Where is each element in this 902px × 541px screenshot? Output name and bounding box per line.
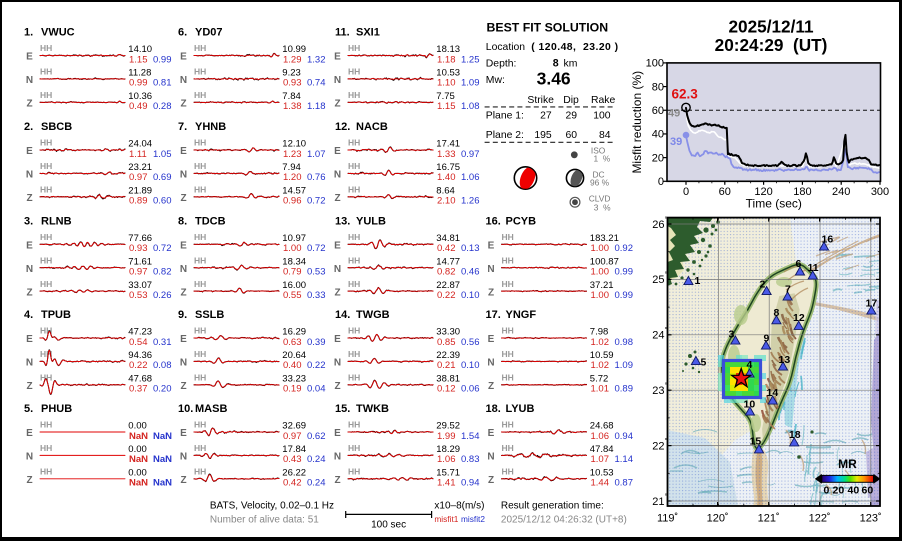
svg-text:HH: HH (502, 326, 514, 336)
svg-text:km: km (564, 58, 578, 69)
svg-text:100: 100 (646, 58, 664, 70)
svg-text:20:24:29 (UT): 20:24:29 (UT) (715, 35, 828, 55)
svg-text:0.43: 0.43 (283, 454, 302, 465)
svg-text:0.10: 0.10 (461, 360, 480, 371)
svg-text:15: 15 (750, 436, 762, 448)
svg-text:0.99: 0.99 (153, 54, 172, 65)
svg-text:TWKB: TWKB (356, 403, 389, 415)
svg-text:11.: 11. (335, 27, 350, 39)
svg-text:Plane 1:: Plane 1: (486, 110, 524, 121)
svg-text:5.: 5. (24, 403, 33, 415)
svg-text:0.04: 0.04 (307, 384, 326, 395)
svg-text:˚: ˚ (665, 271, 668, 280)
svg-text:1.07: 1.07 (591, 454, 610, 465)
svg-text:0.53: 0.53 (129, 290, 148, 301)
svg-text:5: 5 (701, 357, 707, 369)
svg-text:0.39: 0.39 (307, 337, 326, 348)
svg-text:1.26: 1.26 (461, 196, 480, 207)
svg-text:TPUB: TPUB (41, 309, 71, 321)
svg-text:1.09: 1.09 (615, 360, 634, 371)
svg-text:1.09: 1.09 (461, 78, 480, 89)
svg-text:PCYB: PCYB (506, 216, 537, 228)
svg-text:E: E (488, 428, 495, 439)
svg-text:0.69: 0.69 (153, 172, 172, 183)
svg-text:N: N (334, 170, 341, 181)
svg-text:N: N (26, 75, 33, 86)
svg-text:0.22: 0.22 (129, 360, 148, 371)
svg-text:E: E (180, 334, 187, 345)
svg-text:0.46: 0.46 (461, 267, 480, 278)
svg-text:Dip: Dip (563, 95, 579, 106)
svg-text:Misfit reduction (%): Misfit reduction (%) (630, 71, 644, 174)
svg-text:N: N (180, 452, 187, 463)
svg-text:Z: Z (26, 193, 32, 204)
svg-text:HH: HH (194, 420, 206, 430)
svg-text:YHNB: YHNB (195, 121, 226, 133)
svg-text:Z: Z (488, 381, 494, 392)
svg-text:0.22: 0.22 (307, 360, 326, 371)
svg-text:0.97: 0.97 (129, 172, 148, 183)
svg-text:39: 39 (670, 136, 682, 148)
svg-text:0.06: 0.06 (461, 384, 480, 395)
svg-text:0.74: 0.74 (307, 78, 326, 89)
svg-text:N: N (334, 75, 341, 86)
svg-text:6.: 6. (178, 27, 187, 39)
svg-text:N: N (26, 264, 33, 275)
svg-text:49: 49 (668, 107, 680, 119)
svg-text:Z: Z (488, 287, 494, 298)
svg-text:HH: HH (348, 420, 360, 430)
svg-text:17.: 17. (486, 309, 501, 321)
svg-text:14: 14 (767, 387, 779, 399)
svg-text:x10–8(m/s): x10–8(m/s) (434, 500, 484, 511)
svg-text:HH: HH (40, 373, 52, 383)
svg-text:0.24: 0.24 (307, 454, 326, 465)
svg-text:6: 6 (796, 258, 802, 270)
svg-text:3 %: 3 % (594, 202, 611, 212)
svg-text:1.20: 1.20 (283, 172, 302, 183)
svg-text:˚: ˚ (665, 382, 668, 391)
svg-text:60: 60 (652, 105, 664, 117)
svg-text:13: 13 (779, 354, 791, 366)
svg-text:N: N (180, 170, 187, 181)
svg-text:LYUB: LYUB (506, 403, 535, 415)
svg-text:˚: ˚ (665, 216, 668, 225)
svg-text:123˚: 123˚ (860, 513, 882, 525)
svg-text:195: 195 (534, 130, 552, 141)
svg-text:N: N (26, 170, 33, 181)
svg-text:2025/12/12 04:26:32 (UT+8): 2025/12/12 04:26:32 (UT+8) (501, 514, 627, 525)
svg-text:0.94: 0.94 (461, 478, 480, 489)
svg-text:1.11: 1.11 (129, 149, 147, 160)
svg-text:240: 240 (832, 186, 850, 198)
svg-text:0.82: 0.82 (437, 267, 456, 278)
svg-text:2.10: 2.10 (437, 196, 456, 207)
svg-text:HH: HH (502, 373, 514, 383)
svg-text:1.99: 1.99 (437, 431, 456, 442)
svg-text:4.: 4. (24, 309, 33, 321)
svg-text:0.42: 0.42 (283, 478, 302, 489)
svg-text:16: 16 (822, 234, 834, 246)
svg-text:HH: HH (194, 279, 206, 289)
svg-text:0.56: 0.56 (461, 337, 480, 348)
svg-text:1.18: 1.18 (437, 54, 456, 65)
svg-text:60: 60 (862, 484, 874, 496)
svg-text:1.08: 1.08 (461, 101, 480, 112)
svg-text:0.72: 0.72 (307, 196, 326, 207)
svg-text:1.00: 1.00 (591, 290, 610, 301)
svg-text:1.44: 1.44 (591, 478, 610, 489)
svg-text:1.29: 1.29 (283, 54, 302, 65)
svg-text:Mw:: Mw: (486, 75, 505, 86)
svg-text:HH: HH (40, 90, 52, 100)
svg-text:0.83: 0.83 (461, 454, 480, 465)
svg-text:1.32: 1.32 (307, 54, 326, 65)
svg-text:HH: HH (348, 185, 360, 195)
svg-text:0.53: 0.53 (307, 267, 326, 278)
svg-text:HH: HH (348, 43, 360, 53)
svg-text:0.79: 0.79 (283, 267, 302, 278)
svg-text:HH: HH (40, 443, 52, 453)
svg-text:HH: HH (194, 255, 206, 265)
svg-text:1.06: 1.06 (591, 431, 610, 442)
svg-text:12: 12 (793, 312, 805, 324)
svg-text:HH: HH (194, 161, 206, 171)
svg-text:1: 1 (695, 275, 701, 287)
svg-text:HH: HH (194, 67, 206, 77)
svg-text:HH: HH (348, 326, 360, 336)
svg-text:1.14: 1.14 (615, 454, 634, 465)
svg-text:0.99: 0.99 (615, 267, 634, 278)
svg-text:0.60: 0.60 (153, 196, 172, 207)
svg-text:0.97: 0.97 (283, 431, 302, 442)
svg-text:Location: Location (486, 42, 526, 53)
svg-text:10: 10 (744, 399, 756, 411)
svg-text:PHUB: PHUB (41, 403, 72, 415)
svg-text:E: E (26, 146, 33, 157)
svg-text:VWUC: VWUC (41, 27, 75, 39)
svg-text:˚: ˚ (665, 493, 668, 502)
svg-text:119˚: 119˚ (657, 513, 678, 525)
svg-text:3.: 3. (24, 216, 33, 228)
svg-text:HH: HH (502, 349, 514, 359)
svg-text:80: 80 (652, 81, 664, 93)
svg-text:˚: ˚ (665, 437, 668, 446)
svg-text:1.00: 1.00 (283, 243, 302, 254)
svg-text:8.: 8. (178, 216, 187, 228)
svg-text:Strike: Strike (527, 95, 554, 106)
svg-text:0.97: 0.97 (461, 149, 480, 160)
svg-text:HH: HH (40, 43, 52, 53)
svg-text:HH: HH (348, 161, 360, 171)
svg-text:Z: Z (180, 193, 186, 204)
svg-text:NACB: NACB (356, 121, 388, 133)
svg-text:0: 0 (824, 484, 830, 496)
svg-text:25: 25 (652, 274, 664, 286)
svg-text:0.55: 0.55 (283, 290, 302, 301)
svg-text:HH: HH (502, 467, 514, 477)
svg-text:15.: 15. (335, 403, 350, 415)
svg-text:0.26: 0.26 (153, 290, 172, 301)
svg-text:0.89: 0.89 (615, 384, 634, 395)
svg-text:0.93: 0.93 (129, 243, 148, 254)
svg-text:27: 27 (540, 110, 552, 121)
svg-text:N: N (334, 264, 341, 275)
svg-text:2.: 2. (24, 121, 33, 133)
svg-text:HH: HH (348, 443, 360, 453)
svg-text:Plane 2:: Plane 2: (486, 130, 524, 141)
svg-text:HH: HH (194, 443, 206, 453)
svg-text:100 sec: 100 sec (371, 519, 406, 530)
svg-text:HH: HH (348, 255, 360, 265)
svg-text:E: E (334, 52, 341, 63)
svg-text:40: 40 (848, 484, 860, 496)
svg-text:E: E (180, 52, 187, 63)
svg-text:RLNB: RLNB (41, 216, 72, 228)
svg-text:HH: HH (194, 90, 206, 100)
svg-text:HH: HH (502, 279, 514, 289)
svg-text:E: E (334, 428, 341, 439)
svg-text:120˚: 120˚ (707, 513, 729, 525)
svg-text:Number of alive data: 51: Number of alive data: 51 (210, 514, 319, 525)
svg-text:9.: 9. (178, 309, 187, 321)
svg-text:E: E (26, 428, 33, 439)
svg-text:HH: HH (348, 138, 360, 148)
svg-text:NaN: NaN (129, 454, 148, 465)
svg-text:N: N (334, 452, 341, 463)
svg-text:HH: HH (194, 185, 206, 195)
svg-text:SXI1: SXI1 (356, 27, 380, 39)
svg-text:1.01: 1.01 (591, 384, 610, 395)
svg-text:11: 11 (808, 262, 819, 274)
svg-text:300: 300 (871, 186, 889, 198)
svg-text:40: 40 (652, 129, 664, 141)
svg-text:0.96: 0.96 (283, 196, 302, 207)
svg-text:0.94: 0.94 (615, 431, 634, 442)
svg-text:0.28: 0.28 (153, 101, 172, 112)
svg-text:HH: HH (194, 326, 206, 336)
svg-text:1.40: 1.40 (437, 172, 456, 183)
svg-text:22: 22 (652, 440, 664, 452)
svg-text:0.20: 0.20 (153, 384, 172, 395)
svg-text:HH: HH (40, 255, 52, 265)
svg-text:HH: HH (194, 232, 206, 242)
svg-text:2: 2 (760, 279, 766, 291)
svg-text:HH: HH (40, 232, 52, 242)
svg-text:0.62: 0.62 (307, 431, 326, 442)
svg-text:HH: HH (194, 43, 206, 53)
svg-text:0.85: 0.85 (437, 337, 456, 348)
svg-text:N: N (334, 358, 341, 369)
svg-text:HH: HH (348, 232, 360, 242)
svg-text:1.05: 1.05 (153, 149, 172, 160)
svg-text:Z: Z (180, 99, 186, 110)
svg-text:1.06: 1.06 (437, 454, 456, 465)
svg-text:24: 24 (652, 330, 664, 342)
svg-text:0.92: 0.92 (615, 243, 634, 254)
svg-text:0.93: 0.93 (283, 78, 302, 89)
svg-text:misfit2: misfit2 (461, 514, 485, 524)
svg-text:0.08: 0.08 (153, 360, 172, 371)
svg-text:E: E (488, 334, 495, 345)
svg-text:TWGB: TWGB (356, 309, 390, 321)
svg-text:N: N (180, 358, 187, 369)
svg-text:N: N (26, 452, 33, 463)
svg-text:Result generation time:: Result generation time: (501, 500, 604, 511)
svg-text:E: E (26, 334, 33, 345)
svg-text:N: N (487, 264, 494, 275)
svg-text:84: 84 (599, 130, 611, 141)
svg-text:Z: Z (488, 475, 494, 486)
svg-text:HH: HH (348, 67, 360, 77)
svg-text:YULB: YULB (356, 216, 386, 228)
svg-text:1.15: 1.15 (129, 54, 148, 65)
svg-text:HH: HH (348, 349, 360, 359)
svg-text:1.54: 1.54 (461, 431, 480, 442)
svg-text:N: N (180, 264, 187, 275)
svg-text:0.99: 0.99 (615, 290, 634, 301)
svg-text:0.82: 0.82 (153, 267, 172, 278)
svg-text:2025/12/11: 2025/12/11 (728, 16, 814, 36)
svg-text:0.72: 0.72 (307, 243, 326, 254)
svg-text:12.: 12. (335, 121, 350, 133)
svg-text:N: N (487, 452, 494, 463)
svg-text:29: 29 (566, 110, 578, 121)
svg-text:1.25: 1.25 (461, 54, 480, 65)
svg-text:0.54: 0.54 (129, 337, 148, 348)
svg-text:1.00: 1.00 (591, 243, 610, 254)
svg-text:60: 60 (566, 130, 578, 141)
svg-text:10.: 10. (178, 403, 193, 415)
svg-text:TDCB: TDCB (195, 216, 226, 228)
svg-text:0.49: 0.49 (129, 101, 148, 112)
svg-text:HH: HH (40, 467, 52, 477)
svg-text:Z: Z (334, 475, 340, 486)
svg-text:20: 20 (833, 484, 845, 496)
svg-text:E: E (180, 146, 187, 157)
svg-text:BATS, Velocity, 0.02–0.1 Hz: BATS, Velocity, 0.02–0.1 Hz (210, 500, 334, 511)
svg-text:0.98: 0.98 (615, 337, 634, 348)
svg-text:0.24: 0.24 (307, 478, 326, 489)
svg-text:Z: Z (26, 381, 32, 392)
svg-text:HH: HH (502, 443, 514, 453)
svg-text:26: 26 (652, 219, 664, 231)
svg-text:( 120.48, 23.20 ): ( 120.48, 23.20 ) (531, 42, 618, 53)
svg-text:0.42: 0.42 (437, 243, 456, 254)
svg-text:1.06: 1.06 (461, 172, 480, 183)
svg-text:HH: HH (40, 138, 52, 148)
svg-text:HH: HH (40, 67, 52, 77)
svg-text:1.18: 1.18 (307, 101, 326, 112)
svg-text:7.: 7. (178, 121, 187, 133)
svg-text:YNGF: YNGF (506, 309, 537, 321)
svg-text:E: E (334, 146, 341, 157)
svg-text:1.10: 1.10 (437, 78, 456, 89)
svg-text:Z: Z (180, 475, 186, 486)
svg-text:E: E (180, 428, 187, 439)
svg-text:Depth:: Depth: (486, 59, 517, 70)
svg-text:Z: Z (26, 287, 32, 298)
svg-text:0.63: 0.63 (283, 337, 302, 348)
svg-text:18.: 18. (486, 403, 501, 415)
svg-text:1.41: 1.41 (437, 478, 456, 489)
svg-text:4: 4 (747, 359, 753, 371)
svg-text:Z: Z (26, 475, 32, 486)
svg-text:1 %: 1 % (594, 154, 611, 164)
svg-text:0.12: 0.12 (437, 384, 456, 395)
svg-text:NaN: NaN (153, 478, 172, 489)
svg-text:HH: HH (194, 349, 206, 359)
svg-text:0.76: 0.76 (307, 172, 326, 183)
svg-text:0.99: 0.99 (129, 78, 148, 89)
svg-text:0.33: 0.33 (307, 290, 326, 301)
svg-text:Z: Z (180, 287, 186, 298)
svg-text:Z: Z (334, 381, 340, 392)
svg-text:HH: HH (194, 138, 206, 148)
svg-text:0.87: 0.87 (615, 478, 634, 489)
svg-text:8: 8 (774, 307, 780, 319)
svg-text:122˚: 122˚ (809, 513, 831, 525)
svg-text:0: 0 (658, 176, 664, 188)
svg-text:1.15: 1.15 (437, 101, 456, 112)
svg-text:21: 21 (652, 496, 664, 508)
svg-text:HH: HH (502, 232, 514, 242)
svg-text:E: E (26, 52, 33, 63)
svg-text:misfit1: misfit1 (434, 514, 458, 524)
svg-text:13.: 13. (335, 216, 350, 228)
svg-text:Z: Z (334, 193, 340, 204)
svg-text:HH: HH (194, 373, 206, 383)
svg-text:62.3: 62.3 (672, 86, 699, 101)
svg-text:NaN: NaN (153, 454, 172, 465)
svg-text:60: 60 (719, 186, 731, 198)
svg-text:SSLB: SSLB (195, 309, 224, 321)
svg-text:HH: HH (40, 161, 52, 171)
svg-text:N: N (180, 75, 187, 86)
svg-text:Z: Z (334, 287, 340, 298)
svg-text:0.40: 0.40 (283, 360, 302, 371)
svg-text:1.33: 1.33 (437, 149, 456, 160)
svg-text:1.00: 1.00 (591, 267, 610, 278)
svg-text:18: 18 (789, 429, 801, 441)
svg-text:3: 3 (729, 329, 735, 341)
svg-text:1.02: 1.02 (591, 337, 610, 348)
svg-text:Time (sec): Time (sec) (746, 196, 802, 210)
svg-text:N: N (26, 358, 33, 369)
svg-text:20: 20 (652, 152, 664, 164)
svg-text:96 %: 96 % (590, 178, 610, 188)
svg-text:HH: HH (348, 467, 360, 477)
svg-text:E: E (26, 241, 33, 252)
svg-text:14.: 14. (335, 309, 350, 321)
svg-text:0: 0 (683, 186, 689, 198)
svg-text:8: 8 (553, 57, 559, 69)
svg-text:HH: HH (348, 279, 360, 289)
svg-text:YD07: YD07 (195, 27, 223, 39)
svg-text:E: E (334, 241, 341, 252)
svg-text:SBCB: SBCB (41, 121, 72, 133)
svg-text:0.22: 0.22 (437, 290, 456, 301)
svg-text:0.81: 0.81 (153, 78, 172, 89)
svg-text:HH: HH (40, 185, 52, 195)
svg-text:Z: Z (334, 99, 340, 110)
svg-text:100: 100 (593, 110, 611, 121)
svg-text:121˚: 121˚ (758, 513, 780, 525)
svg-text:E: E (180, 241, 187, 252)
svg-text:0.10: 0.10 (461, 290, 480, 301)
svg-text:HH: HH (40, 420, 52, 430)
svg-text:HH: HH (194, 467, 206, 477)
